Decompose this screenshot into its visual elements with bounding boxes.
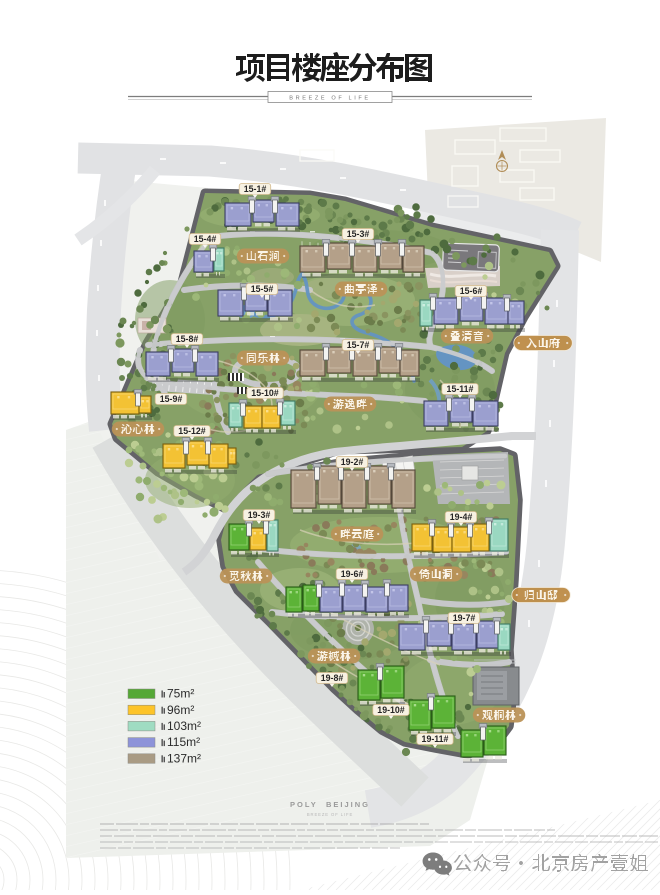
svg-text:19-4#: 19-4# — [450, 512, 473, 522]
svg-text:96m²: 96m² — [167, 703, 194, 717]
svg-text:15-12#: 15-12# — [178, 426, 205, 436]
svg-text:15-4#: 15-4# — [194, 234, 217, 244]
svg-text:15-10#: 15-10# — [251, 388, 278, 398]
svg-text:15-6#: 15-6# — [460, 286, 483, 296]
svg-text:19-3#: 19-3# — [248, 510, 271, 520]
svg-text:19-10#: 19-10# — [377, 705, 404, 715]
svg-text:19-8#: 19-8# — [321, 673, 344, 683]
svg-text:115m²: 115m² — [167, 735, 200, 749]
svg-text:BREEZE OF LIFE: BREEZE OF LIFE — [289, 96, 370, 102]
svg-text:137m²: 137m² — [167, 751, 201, 765]
svg-text:15-3#: 15-3# — [347, 229, 370, 239]
svg-text:103m²: 103m² — [167, 719, 201, 733]
svg-text:15-7#: 15-7# — [347, 340, 370, 350]
svg-text:POLY BEIJING: POLY BEIJING — [290, 800, 370, 809]
svg-text:75m²: 75m² — [167, 687, 194, 701]
svg-text:BREEZE OF LIFE: BREEZE OF LIFE — [307, 812, 353, 817]
svg-text:15-8#: 15-8# — [176, 334, 199, 344]
svg-text:15-1#: 15-1# — [244, 184, 267, 194]
svg-text:19-7#: 19-7# — [453, 613, 476, 623]
svg-text:15-5#: 15-5# — [251, 284, 274, 294]
svg-text:19-11#: 19-11# — [422, 734, 449, 744]
svg-text:15-9#: 15-9# — [160, 394, 183, 404]
svg-text:15-11#: 15-11# — [447, 384, 474, 394]
svg-text:19-2#: 19-2# — [341, 457, 364, 467]
svg-text:19-6#: 19-6# — [341, 569, 364, 579]
